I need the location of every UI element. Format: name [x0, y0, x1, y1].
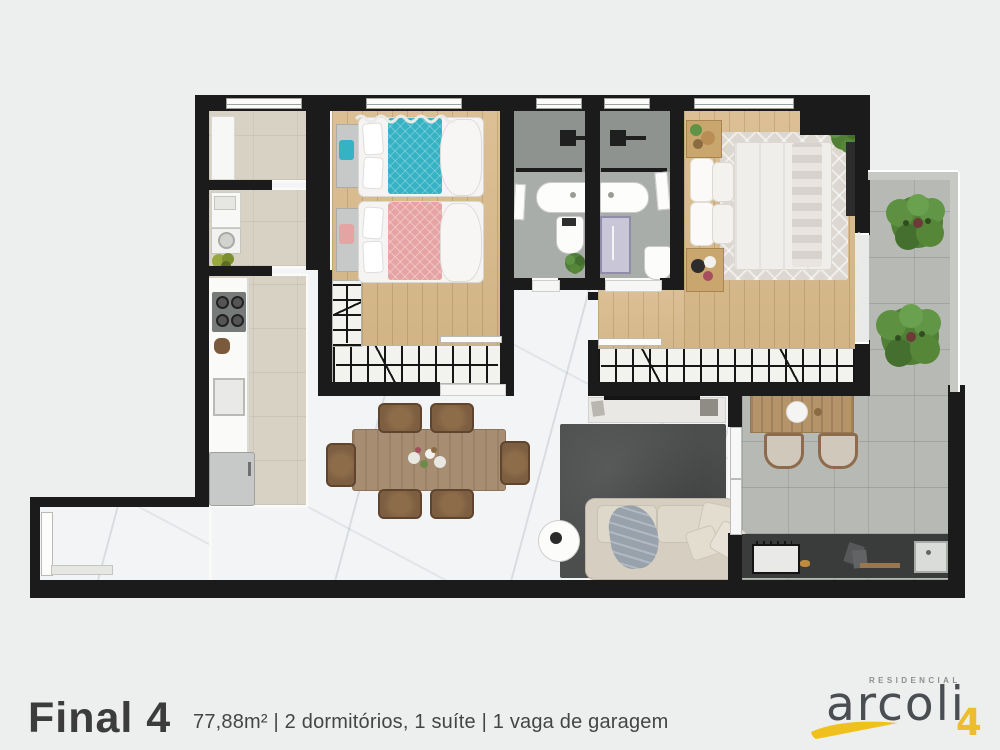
vanity-sink	[600, 182, 649, 213]
pink-duvet	[388, 202, 442, 280]
refrigerator	[209, 452, 255, 506]
apartment-specs: 77,88m² | 2 dormitórios, 1 suíte | 1 vag…	[193, 711, 668, 734]
wall	[855, 340, 870, 396]
wall	[195, 95, 209, 507]
terrace-tree	[866, 292, 954, 380]
door-threshold	[440, 384, 506, 396]
grill-grate	[756, 541, 792, 545]
window	[366, 98, 462, 109]
door-threshold	[532, 280, 560, 292]
window	[536, 98, 582, 109]
pillow	[362, 240, 384, 273]
wall	[728, 385, 742, 427]
terrace-tree	[878, 183, 956, 261]
wall	[670, 95, 684, 290]
curtain	[354, 112, 458, 126]
table-decor	[814, 408, 822, 416]
wall	[948, 385, 965, 580]
cutting-board	[860, 563, 900, 568]
shower-head-icon	[610, 130, 626, 146]
teal-duvet	[388, 118, 442, 194]
washer-door	[218, 232, 235, 249]
nightstand-decor	[688, 252, 720, 288]
bedroom2-wardrobe-hatch	[332, 345, 502, 384]
toilet-flush	[562, 218, 576, 226]
shower-arm	[626, 136, 646, 140]
glass-door-panel	[730, 479, 742, 535]
balcony-sink	[914, 541, 948, 573]
plate	[786, 401, 808, 423]
wall	[306, 95, 330, 270]
pink-cushion	[339, 224, 354, 244]
logo-swoosh	[808, 716, 900, 742]
wall	[855, 95, 870, 235]
wall	[514, 278, 532, 290]
pillow	[712, 204, 734, 244]
dining-chair	[500, 441, 530, 485]
door-leaf	[598, 338, 662, 346]
apartment-title: Final 4	[28, 694, 171, 743]
counter-decor	[214, 338, 230, 354]
nightstand-decor	[688, 122, 718, 152]
shower-box-door-line	[612, 226, 614, 260]
floor-plan-page: Final 4 77,88m² | 2 dormitórios, 1 suíte…	[0, 0, 1000, 750]
wall	[202, 266, 272, 276]
folded-blanket	[440, 119, 482, 196]
logo-unit-4: 4	[956, 701, 982, 744]
faucet	[570, 192, 576, 198]
folded-blanket	[440, 203, 482, 282]
terrace-fence	[868, 172, 958, 180]
wall	[558, 278, 605, 290]
dining-chair	[430, 489, 474, 519]
pillow	[362, 206, 384, 239]
counter-decor	[800, 560, 810, 567]
pillow	[712, 162, 734, 202]
pillow	[362, 122, 384, 155]
hall-bench	[51, 565, 113, 575]
sink-basin	[214, 196, 236, 210]
window	[604, 98, 650, 109]
pillow	[690, 158, 714, 202]
burner	[216, 296, 229, 309]
window	[226, 98, 302, 109]
console-decor	[700, 399, 718, 416]
console-decor	[591, 400, 605, 417]
pillow	[362, 156, 384, 189]
faucet	[926, 550, 931, 555]
burner	[216, 314, 229, 327]
shower-head-icon	[560, 130, 576, 146]
wall	[728, 533, 742, 580]
wall	[588, 292, 598, 300]
door-leaf	[440, 336, 502, 343]
bedroom2-wardrobe-side-hatch	[332, 280, 362, 347]
wall	[585, 95, 600, 290]
wall	[30, 497, 209, 507]
dining-chair	[430, 403, 474, 433]
shower-box	[600, 216, 631, 274]
teal-cushion	[339, 140, 354, 160]
table-centerpiece	[400, 442, 456, 476]
fridge-handle	[248, 462, 251, 476]
balcony-chair	[818, 433, 858, 469]
wall	[318, 382, 440, 396]
toilet	[644, 246, 672, 280]
wall	[30, 580, 965, 598]
wall	[202, 180, 272, 190]
shower-glass-rail	[516, 168, 582, 172]
wall	[318, 270, 332, 396]
terrace-fence	[950, 172, 958, 392]
dining-chair	[378, 403, 422, 433]
door-threshold	[605, 280, 662, 292]
barbecue-grill	[752, 544, 800, 574]
faucet	[608, 192, 614, 198]
dining-chair	[326, 443, 356, 487]
burner	[231, 314, 244, 327]
dining-chair	[378, 489, 422, 519]
suite-wardrobe-hatch	[597, 348, 857, 384]
vanity-sink	[536, 182, 587, 213]
pillow	[690, 202, 714, 246]
towel	[513, 184, 526, 221]
wall	[500, 95, 514, 396]
window	[694, 98, 794, 109]
bed-throw	[792, 143, 822, 267]
balcony-chair	[764, 433, 804, 469]
curtain	[851, 231, 869, 343]
side-table-decor	[550, 532, 562, 544]
glass-door-panel	[730, 427, 742, 479]
service-counter	[211, 116, 235, 180]
oven	[213, 378, 245, 416]
burner	[231, 296, 244, 309]
